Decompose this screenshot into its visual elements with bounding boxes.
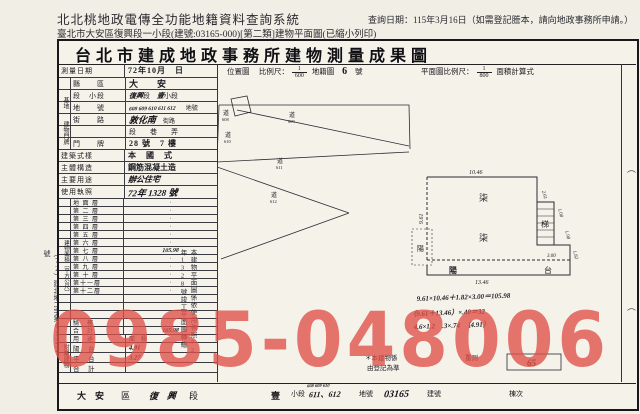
main-use-label: 主要用途 <box>59 174 125 185</box>
strip-land-value: 611、612 <box>308 389 341 401</box>
svg-text:道: 道 <box>225 131 231 139</box>
calc-line-2: （9.61＋13.46）×.40＝32 <box>409 307 486 319</box>
annex-label: 合 計 <box>71 363 126 372</box>
cadastral-map-number: 6 <box>342 66 347 77</box>
annex-area-header: 面 積 <box>126 334 217 343</box>
group-area-label: 建物面積（平方公尺） <box>59 200 70 334</box>
street-label: 街 路 <box>71 114 126 125</box>
document-subtitle: 臺北市大安區復興段一小段(建號:03165-000)[第二類]建物平面圖(已縮小… <box>57 26 376 40</box>
balcony-label-2: 台 <box>544 265 552 275</box>
area-calc-label: 面積計算式 <box>496 67 534 76</box>
floor-label: 第十二層 <box>71 287 124 294</box>
lane-label <box>71 126 126 137</box>
floor-label <box>71 303 124 310</box>
annex-value: 3.27 <box>126 353 218 362</box>
strip-land-value-wrap: 608 609 610 611、612 <box>309 389 341 400</box>
dim-top: 10.46 <box>469 169 483 176</box>
license-label: 使用執照 <box>59 186 125 198</box>
location-map-label: 位置圖 <box>227 67 250 76</box>
dim-right-2: 1.08 <box>556 208 563 218</box>
signature-paren-2: （ <box>625 302 638 311</box>
main-use-value: 辦公住宅 <box>125 174 217 185</box>
strip-district-value: 大 安 <box>77 389 104 402</box>
floor-label: 第 八 層 <box>71 255 124 262</box>
section-row: 段 小段 復興段 壹小段 <box>59 90 217 102</box>
footnote-1: ＊本建物係 <box>365 353 398 362</box>
svg-text:道: 道 <box>289 111 295 119</box>
small-box-label: 陽 <box>417 244 424 253</box>
floor-area-value: · <box>124 320 217 326</box>
calc-line-1: 9.61×10.46＋1.82×3.00＝105.98 <box>417 292 511 303</box>
building-style-label: 建築式樣 <box>59 150 125 161</box>
floor-area-value: · <box>124 264 217 270</box>
svg-text:608: 608 <box>222 117 230 122</box>
main-use-row: 主要用途 辦公住宅 <box>59 174 217 186</box>
floor-area-value: · <box>124 224 217 230</box>
land-number-value: 608 609 610 611 612 地號 <box>126 103 217 112</box>
svg-text:道: 道 <box>271 191 277 199</box>
floor-area-value: 105.98 <box>124 247 218 255</box>
group-annex-label: 附屬建物 <box>59 337 70 375</box>
door-number-value: 28 號 7 樓 <box>126 138 217 149</box>
section-label: 段 小段 <box>71 90 126 101</box>
svg-text:道: 道 <box>277 157 283 165</box>
cadastral-map-label: 地籍圖 <box>312 67 335 76</box>
survey-result-form: 台北市建成地政事務所建物測量成果圖 位置圖 比例尺：1600 地籍圖 6 號 平… <box>57 39 639 411</box>
license-value: 72年 1328 號 <box>125 186 217 199</box>
lane-value: 段 巷 弄 <box>126 127 217 137</box>
structure-row: 主體構造 鋼筋混凝土造 <box>59 162 217 174</box>
strip-land-small: 608 609 610 <box>307 383 330 388</box>
floor-label: 合 計 <box>71 327 124 334</box>
location-map <box>217 96 410 259</box>
floor-label <box>71 311 124 318</box>
svg-text:609: 609 <box>288 119 296 124</box>
floor-label: 第十一層 <box>71 279 124 286</box>
stair-label: 梯 <box>541 219 549 229</box>
strip-building-number-value: 03165 <box>383 389 409 400</box>
annex-value: 4.91 <box>126 343 218 352</box>
location-map-labels: 道608 道609 道610 道611 道612 <box>222 109 296 204</box>
floor-area-value: · <box>124 272 217 278</box>
strip-section-value: 復 興 <box>148 389 176 402</box>
floor-label: 第 二 層 <box>71 207 124 214</box>
structure-value: 鋼筋混凝土造 <box>125 162 217 173</box>
lane-row: 段 巷 弄 <box>59 126 217 138</box>
svg-text:612: 612 <box>270 199 277 204</box>
svg-text:道: 道 <box>223 109 229 117</box>
signature-paren-1: （ <box>625 164 638 173</box>
dim-left: 9.61 <box>419 214 425 225</box>
survey-date-value: 72年10月 日 <box>125 65 217 76</box>
structure-label: 主體構造 <box>59 162 125 173</box>
transfer-note: 本建物平面圖係依使用執照72年1328號竣工平面圖轉繪 <box>177 249 197 361</box>
query-date: 查詢日期：115年3月16日（如需登記謄本，請向地政事務所申請。） <box>368 13 633 26</box>
annex-use-header: 用 途 <box>71 335 126 342</box>
area-calculations: 9.61×10.46＋1.82×3.00＝105.98 （9.61＋13.46）… <box>409 292 512 332</box>
dim-right-3: 1.98 <box>563 230 570 240</box>
svg-text:611: 611 <box>276 165 283 170</box>
plan-scale: 平面圖比例尺：1800 面積計算式 <box>421 66 534 79</box>
floor-area-value: 105.98 <box>124 327 218 335</box>
dim-right-5: 1.82 <box>571 250 578 260</box>
floor-label: 第 六 層 <box>71 239 124 246</box>
floor-label: 騎 樓 <box>71 319 124 326</box>
section-value: 復興段 壹小段 <box>126 91 217 101</box>
cadastral-unit: 號 <box>355 67 363 76</box>
floor-label: 第 七 層 <box>71 247 124 254</box>
floor-area-value: · <box>124 200 217 206</box>
floor-label: 第 四 層 <box>71 223 124 230</box>
building-style-row: 建築式樣 本 國 式 <box>59 150 217 162</box>
form-title: 台北市建成地政事務所建物測量成果圖 <box>75 42 432 66</box>
land-number-label: 地 號 <box>71 102 126 113</box>
county-label: 縣 區 <box>71 78 126 89</box>
plan-scale-label: 平面圖比例尺： <box>421 67 474 76</box>
floor-label: 第 十 層 <box>71 271 124 278</box>
floor-label: 第 九 層 <box>71 263 124 270</box>
floor-mark-2: 柒 <box>479 232 488 243</box>
plan-scale-fraction: 1800 <box>477 66 492 79</box>
dim-right-1: 2.61 <box>540 190 547 200</box>
floor-area-value: · <box>124 280 217 286</box>
annex-label: 陽 台 <box>71 343 126 352</box>
county-value: 大 安 <box>126 77 217 90</box>
strip-section-label: 段 <box>189 389 198 402</box>
door-number-label: 門 牌 <box>71 138 126 149</box>
floor-label: 第 三 層 <box>71 215 124 222</box>
street-row: 街 路 敦化南 街路 <box>59 114 217 126</box>
calc-line-3: 4.6×1.2 .3×.74 （4.91） <box>412 319 490 331</box>
annex-row: 合 計 <box>59 363 217 373</box>
dim-bottom: 13.46 <box>475 279 489 286</box>
floor-area-value: · <box>124 216 217 222</box>
county-row: 縣 區 大 安 <box>59 78 217 90</box>
survey-date-label: 測量日期 <box>59 64 125 77</box>
floor-area-value: · <box>124 288 217 294</box>
floor-label: 地 面 層 <box>71 199 124 206</box>
strip-unit-label: 棟次 <box>509 389 523 399</box>
strip-subsection-label: 小段 <box>291 389 305 399</box>
floor-area-value: · <box>124 232 217 238</box>
signature-column: （ （ <box>621 64 637 382</box>
building-style-value: 本 國 式 <box>125 150 217 161</box>
street-value: 敦化南 街路 <box>126 113 217 126</box>
location-scale-fraction: 1600 <box>292 66 307 79</box>
registry-document-page: 北北桃地政電傳全功能地籍資料查詢系統 查詢日期：115年3月16日（如需登記謄本… <box>0 0 640 414</box>
gutter <box>59 78 71 89</box>
dim-right-4: 3.00 <box>547 254 556 259</box>
location-map-scale: 位置圖 比例尺：1600 地籍圖 6 號 <box>227 66 363 79</box>
strip-district-label: 區 <box>121 389 130 402</box>
footnote-box-value: 65 <box>527 358 537 368</box>
footnote-1b: 重測 <box>465 353 478 362</box>
floor-area-value: · <box>124 208 217 214</box>
door-number-row: 門 牌 28 號 7 樓 <box>59 138 217 150</box>
survey-drawing: 道608 道609 道610 道611 道612 10.46 13.46 <box>217 79 622 371</box>
strip-building-number-label: 建號 <box>427 389 441 399</box>
footnote-2: 由登記為準 <box>367 363 400 371</box>
group-door-label: 建物門牌 <box>59 115 70 151</box>
floor-mark-1: 柒 <box>479 192 488 203</box>
strip-land-label: 地號 <box>359 389 373 399</box>
footnotes: ＊本建物係 重測 由登記為準 65 <box>365 353 561 371</box>
floor-label: 第 五 層 <box>71 231 124 238</box>
floor-label <box>71 295 124 302</box>
floor-area-value: · <box>124 256 217 262</box>
survey-date-row: 測量日期 72年10月 日 <box>59 64 217 78</box>
group-site-label: 基地 <box>59 91 70 115</box>
strip-subsection-value: 壹 <box>271 389 280 402</box>
floor-area-value: · <box>124 240 217 246</box>
scale-label: 比例尺： <box>259 67 289 76</box>
svg-text:610: 610 <box>224 139 232 144</box>
balcony-label-1: 陽 <box>449 265 457 275</box>
bottom-location-strip: 大 安 區 復 興 段 壹 小段 608 609 610 611、612 地號 … <box>59 385 637 405</box>
annex-label: 平 台 <box>71 353 126 362</box>
